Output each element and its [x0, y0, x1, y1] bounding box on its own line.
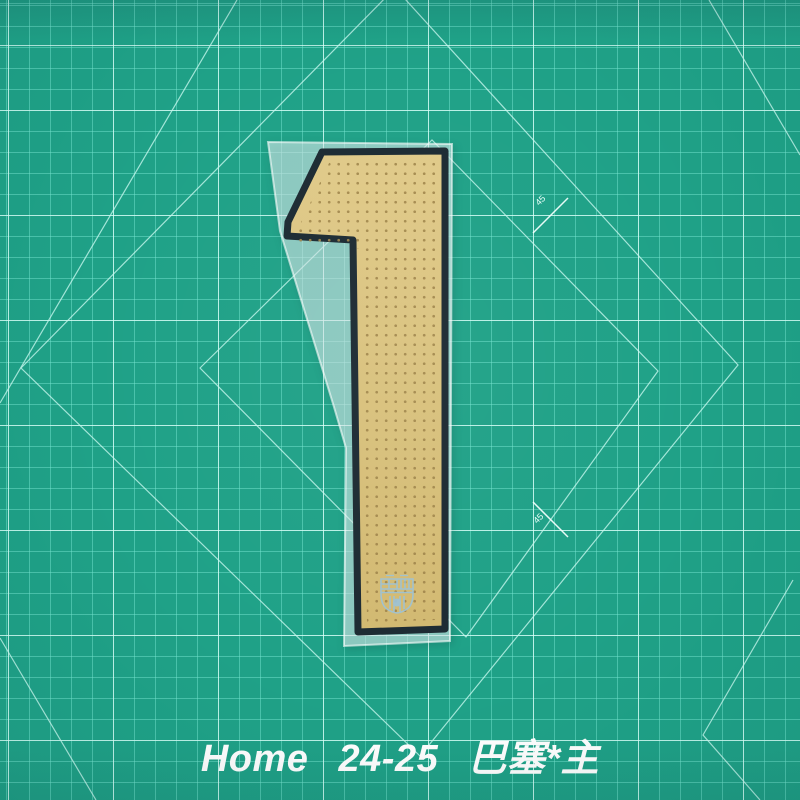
crest-ball [393, 599, 401, 607]
caption-text: Home 24-25 巴塞*主 [0, 740, 800, 778]
product-photo: 45 45 1 [0, 0, 800, 800]
number-patch: 1 [0, 0, 800, 800]
